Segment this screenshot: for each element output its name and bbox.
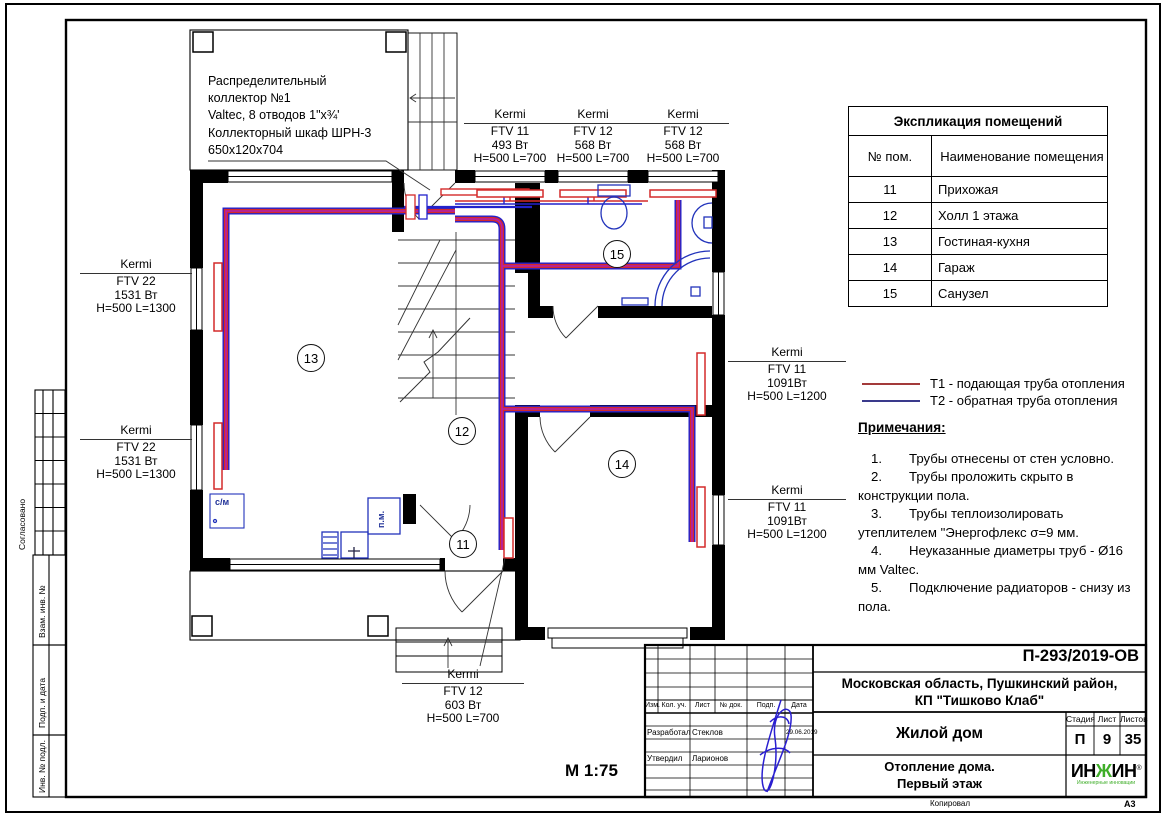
project-line: Московская область, Пушкинский район, bbox=[813, 675, 1146, 692]
radiator-label-left-top: Kermi FTV 22 1531 Вт H=500 L=1300 bbox=[80, 258, 192, 316]
porch-steps bbox=[396, 628, 502, 672]
radiator bbox=[214, 423, 222, 489]
sign-date-label: Подп. и дата bbox=[37, 678, 47, 728]
col-sign: Подп. bbox=[747, 702, 785, 709]
collector-note-line: коллектор №1 bbox=[208, 90, 371, 107]
role-approved: Утвердил bbox=[647, 754, 682, 763]
room-name: Холл 1 этажа bbox=[932, 203, 1108, 229]
table-row: 14 Гараж bbox=[849, 255, 1108, 281]
role-developed: Разработал bbox=[647, 728, 691, 737]
radiator bbox=[697, 353, 705, 415]
doc-number: П-293/2019-ОВ bbox=[813, 647, 1153, 666]
notes-block: Примечания: 1.Трубы отнесены от стен усл… bbox=[858, 419, 1136, 616]
washer-dot bbox=[214, 520, 217, 523]
stove bbox=[322, 532, 338, 558]
radiator-label-top-3: Kermi FTV 12 568 Вт H=500 L=700 bbox=[637, 108, 729, 166]
object-name: Жилой дом bbox=[813, 725, 1066, 743]
room-name: Санузел bbox=[932, 281, 1108, 307]
collector-note-line: Коллекторный шкаф ШРН-3 bbox=[208, 125, 371, 142]
sign-date-value: 29.06.2019 bbox=[786, 729, 818, 736]
drawing-title-line: Отопление дома. bbox=[813, 758, 1066, 775]
corner-sink bbox=[692, 203, 712, 243]
sheet-label: Лист bbox=[1094, 714, 1120, 724]
note-item: 2.Трубы проложить скрыто в конструкции п… bbox=[858, 468, 1136, 505]
room-circle-14: 14 bbox=[608, 450, 636, 478]
copy-label: Копировал bbox=[880, 799, 1020, 808]
room-circle-12: 12 bbox=[448, 417, 476, 445]
kitchen-faucet bbox=[348, 547, 360, 558]
bath-threshold bbox=[622, 298, 648, 305]
room-name: Прихожая bbox=[932, 177, 1108, 203]
inv-orig-label: Инв. № подл. bbox=[37, 740, 47, 793]
note-item: 1.Трубы отнесены от стен условно. bbox=[858, 450, 1136, 469]
name-developed: Стеклов bbox=[692, 728, 723, 737]
note-item: 4.Неуказанные диаметры труб - Ø16 мм Val… bbox=[858, 542, 1136, 579]
washer-label: с/м bbox=[215, 497, 229, 507]
note-item: 5.Подключение радиаторов - снизу из пола… bbox=[858, 579, 1136, 616]
dishwasher-label: п.м. bbox=[376, 511, 386, 528]
radiator-label-left-bottom: Kermi FTV 22 1531 Вт H=500 L=1300 bbox=[80, 424, 192, 482]
room-name: Гараж bbox=[932, 255, 1108, 281]
drawing-sheet: Согласовано Взам. инв. № Подп. и дата Ин… bbox=[0, 0, 1166, 816]
radiator-label-top-2: Kermi FTV 12 568 Вт H=500 L=700 bbox=[547, 108, 639, 166]
collector-annotation: Распределительный коллектор №1 Valtec, 8… bbox=[208, 73, 371, 159]
col-izm: Изм. bbox=[645, 702, 658, 709]
format-label: А3 bbox=[1124, 799, 1136, 809]
radiator-label-right-bottom: Kermi FTV 11 1091Вт H=500 L=1200 bbox=[728, 484, 846, 542]
logo-part-green: Ж bbox=[1096, 761, 1112, 781]
room-number: 15 bbox=[849, 281, 932, 307]
logo-part: ИН bbox=[1112, 761, 1137, 781]
agreed-label: Согласовано bbox=[17, 499, 27, 550]
collector-note-line: Распределительный bbox=[208, 73, 371, 90]
company-logo: ИНЖИН® Инженерные инновации bbox=[1066, 760, 1146, 786]
table-row: 12 Холл 1 этажа bbox=[849, 203, 1108, 229]
logo-reg-mark: ® bbox=[1136, 765, 1141, 772]
room-circle-15: 15 bbox=[603, 240, 631, 268]
sheets-value: 35 bbox=[1120, 731, 1146, 748]
room-number: 11 bbox=[849, 177, 932, 203]
table-row: 15 Санузел bbox=[849, 281, 1108, 307]
legend-t2-label: Т2 - обратная труба отопления bbox=[930, 393, 1118, 408]
sheets-label: Листов bbox=[1120, 714, 1146, 724]
scale-label: М 1:75 bbox=[565, 761, 618, 781]
radiator-label-top-1: Kermi FTV 11 493 Вт H=500 L=700 bbox=[464, 108, 556, 166]
notes-title: Примечания: bbox=[858, 419, 1136, 438]
radiator-label-bottom: Kermi FTV 12 603 Вт H=500 L=700 bbox=[402, 668, 524, 726]
logo-part: ИН bbox=[1071, 761, 1096, 781]
col-list: Лист bbox=[690, 702, 715, 709]
stage-label: Стадия bbox=[1066, 714, 1094, 724]
note-item: 3.Трубы теплоизолировать утеплителем "Эн… bbox=[858, 505, 1136, 542]
table-title: Экспликация помещений bbox=[849, 107, 1108, 136]
table-row: 13 Гостиная-кухня bbox=[849, 229, 1108, 255]
shower-drain bbox=[691, 287, 700, 296]
windows bbox=[191, 171, 724, 570]
radiator-label-right-top: Kermi FTV 11 1091Вт H=500 L=1200 bbox=[728, 346, 846, 404]
sheet-value: 9 bbox=[1094, 731, 1120, 748]
collector-note-line: 650х120х704 bbox=[208, 142, 371, 159]
col-doc: № док. bbox=[715, 702, 747, 709]
col-date: Дата bbox=[785, 702, 813, 709]
logo-text: ИНЖИН® bbox=[1066, 760, 1146, 780]
logo-subtitle: Инженерные инновации bbox=[1066, 780, 1146, 786]
exterior-stairs bbox=[408, 33, 457, 170]
replace-inv-label: Взам. инв. № bbox=[37, 585, 47, 638]
table-row: 11 Прихожая bbox=[849, 177, 1108, 203]
plumbing-fixtures bbox=[210, 185, 712, 558]
radiators bbox=[214, 190, 716, 558]
radiator bbox=[477, 190, 543, 197]
stage-value: П bbox=[1066, 731, 1094, 748]
name-approved: Ларионов bbox=[692, 754, 728, 763]
legend-t1-swatch bbox=[862, 383, 920, 385]
room-circle-11: 11 bbox=[449, 530, 477, 558]
legend-t2-swatch bbox=[862, 400, 920, 402]
legend-t1-label: Т1 - подающая труба отопления bbox=[930, 376, 1125, 391]
col-header-number: № пом. bbox=[849, 136, 932, 177]
shower-arc bbox=[655, 251, 710, 306]
room-circle-13: 13 bbox=[297, 344, 325, 372]
radiator bbox=[504, 518, 513, 558]
room-number: 12 bbox=[849, 203, 932, 229]
room-explication-table: Экспликация помещений № пом. Наименовани… bbox=[848, 106, 1108, 307]
radiator bbox=[214, 263, 222, 331]
col-header-name: Наименование помещения bbox=[932, 136, 1108, 177]
radiator bbox=[650, 190, 716, 197]
drawing-title: Отопление дома. Первый этаж bbox=[813, 758, 1066, 792]
col-kol: Кол. уч. bbox=[658, 702, 690, 709]
drawing-title-line: Первый этаж bbox=[813, 775, 1066, 792]
project-name: Московская область, Пушкинский район, КП… bbox=[813, 675, 1146, 709]
room-number: 14 bbox=[849, 255, 932, 281]
interior-stairs bbox=[398, 232, 515, 415]
room-name: Гостиная-кухня bbox=[932, 229, 1108, 255]
toilet-bowl bbox=[601, 197, 627, 229]
leader-lines bbox=[208, 161, 505, 666]
radiator bbox=[697, 487, 705, 547]
room-number: 13 bbox=[849, 229, 932, 255]
project-line: КП "Тишково Клаб" bbox=[813, 692, 1146, 709]
stove-burners bbox=[323, 537, 337, 555]
sink-tap bbox=[704, 217, 712, 228]
collector-note-line: Valtec, 8 отводов 1"х¾' bbox=[208, 107, 371, 124]
